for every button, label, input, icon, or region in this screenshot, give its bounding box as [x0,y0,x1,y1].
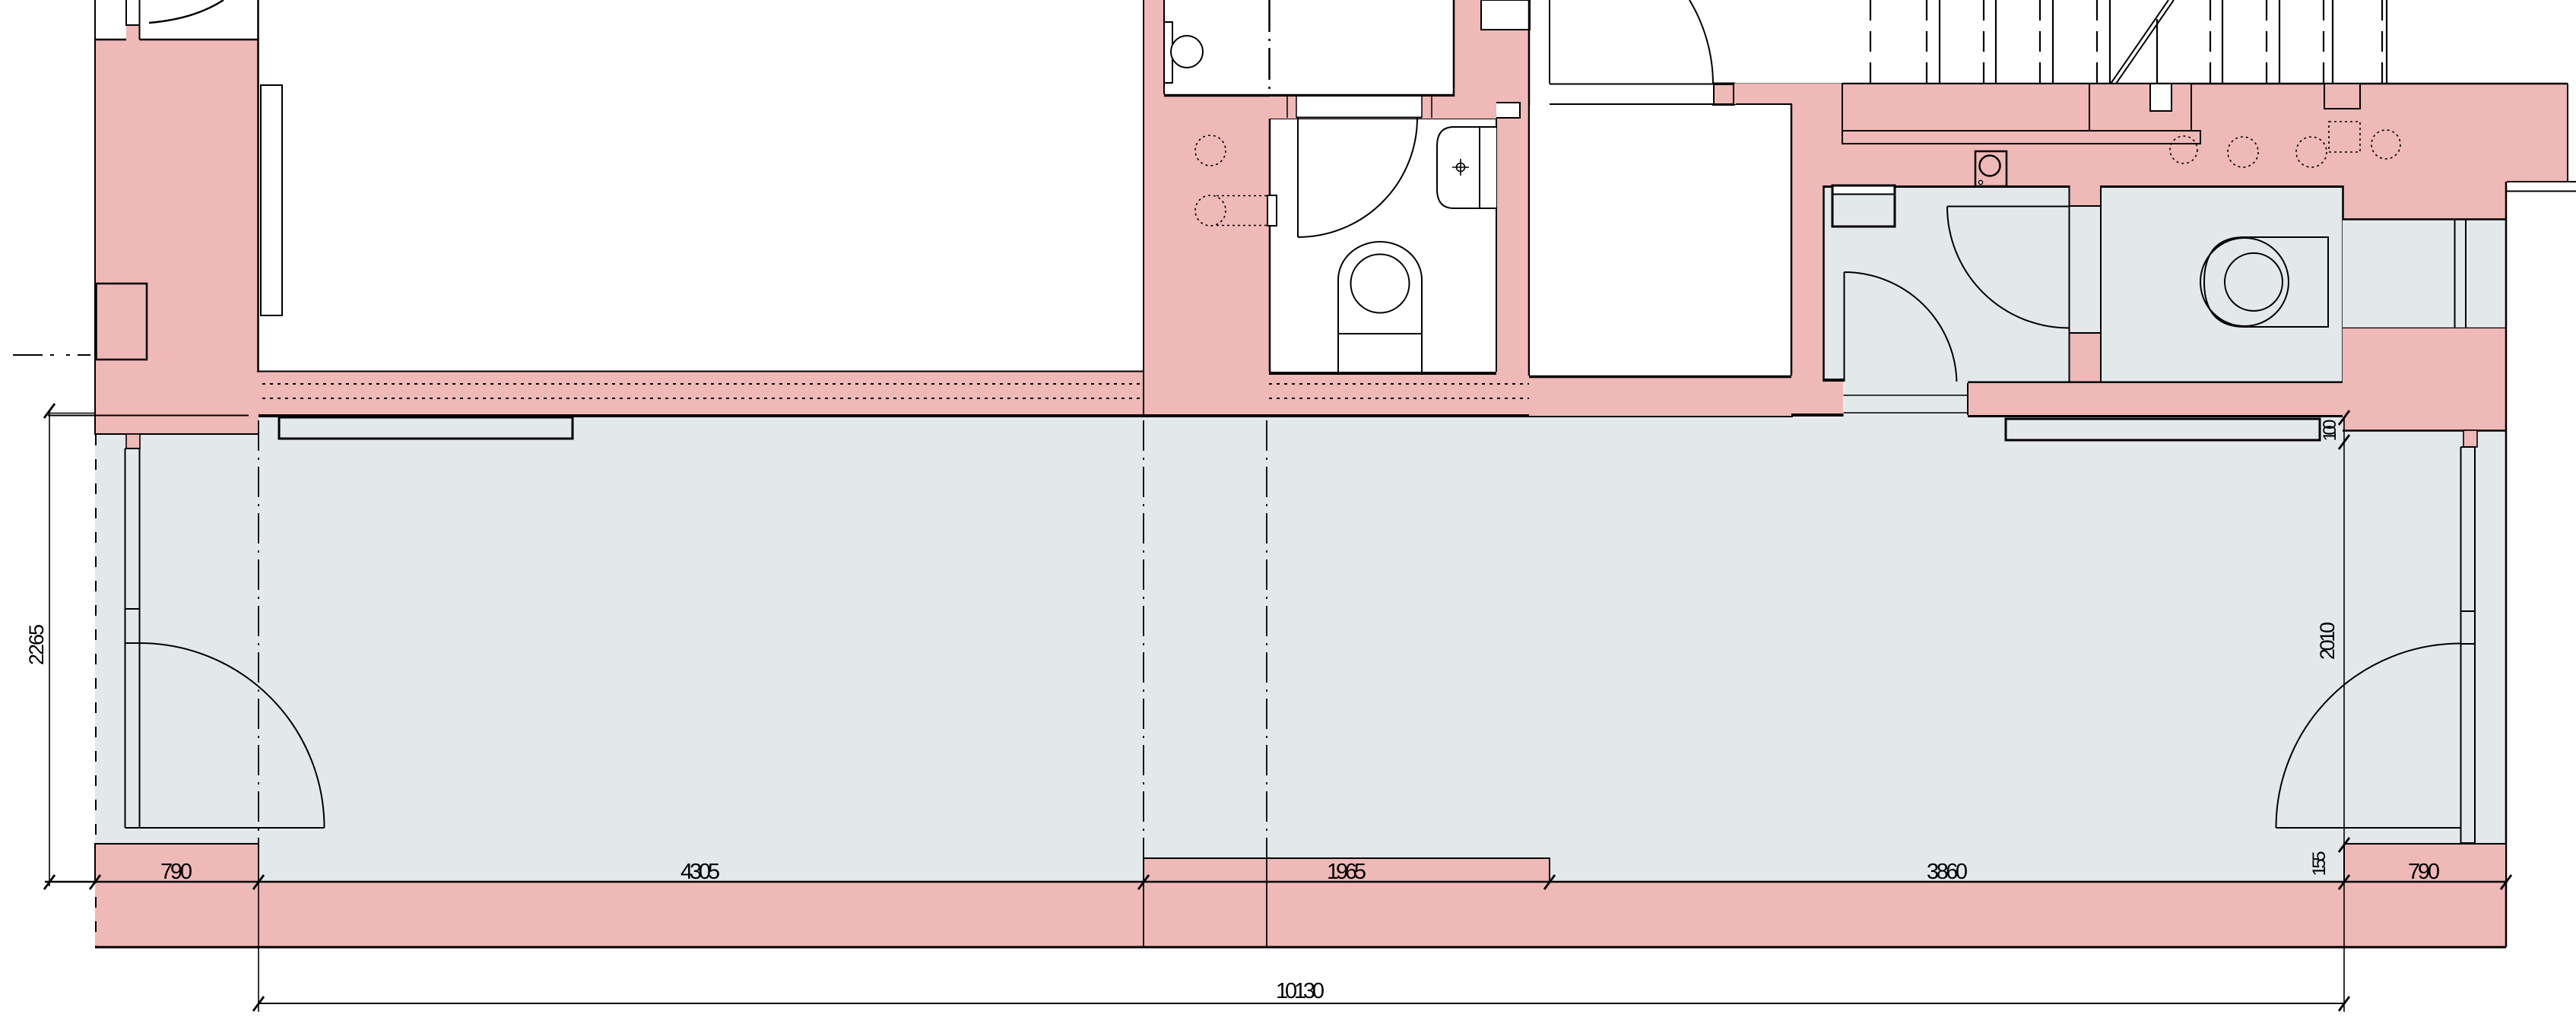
svg-text:4305: 4305 [680,860,720,884]
svg-text:1965: 1965 [1327,860,1366,884]
svg-text:2010: 2010 [2316,622,2339,660]
svg-text:790: 790 [2408,860,2440,884]
svg-text:2265: 2265 [25,624,48,665]
svg-text:10130: 10130 [1276,979,1324,1003]
svg-text:155: 155 [2309,851,2330,876]
svg-text:790: 790 [160,860,192,884]
svg-text:3860: 3860 [1927,860,1968,884]
svg-text:100: 100 [2320,420,2340,442]
